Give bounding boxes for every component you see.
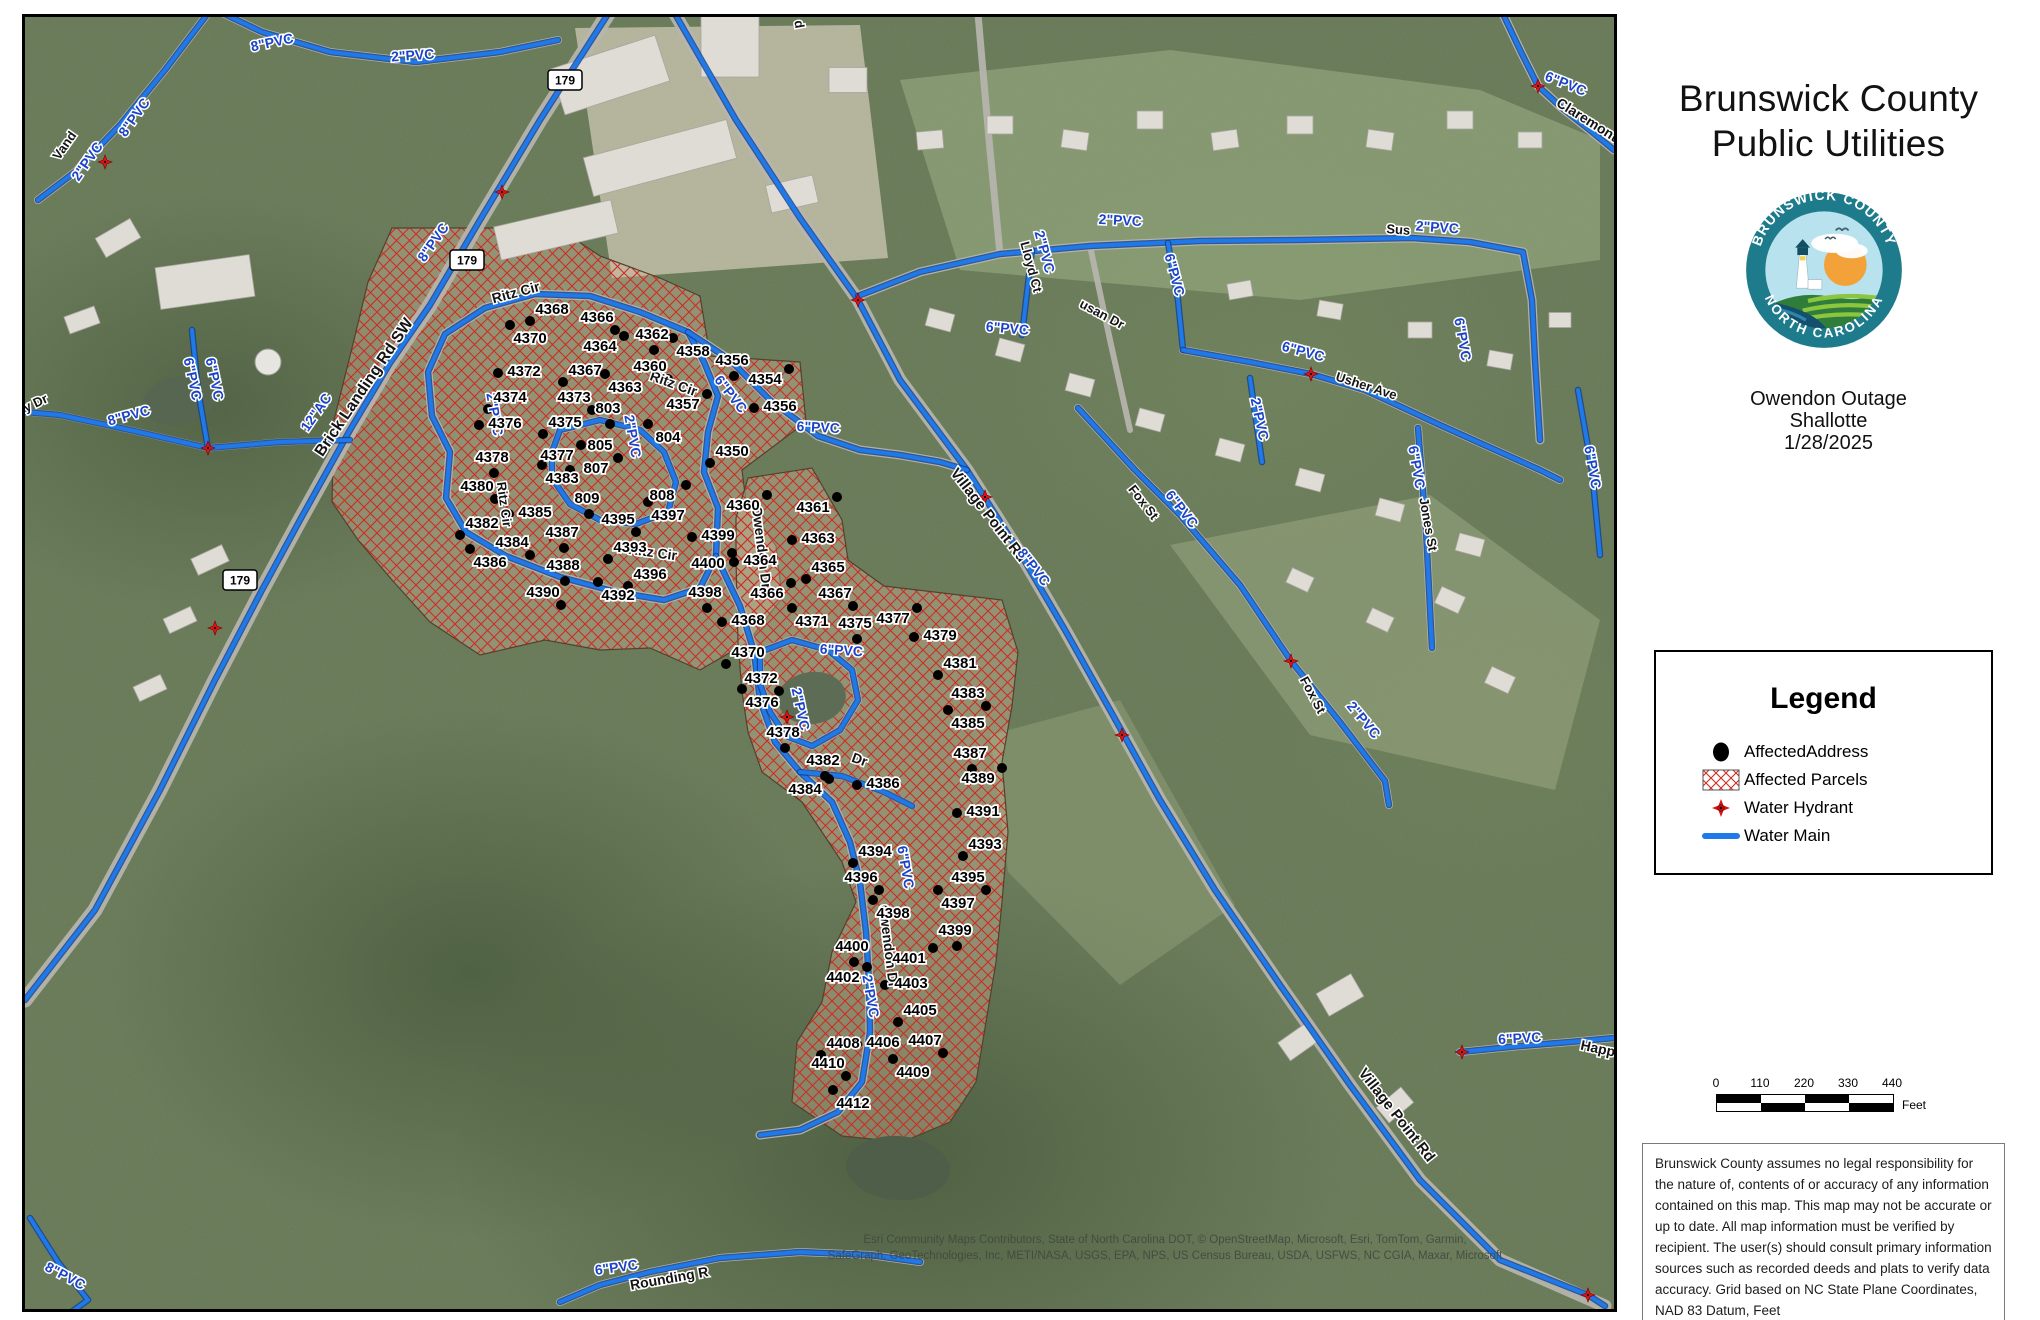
address-label: 4395 [601, 511, 634, 528]
address-label: 4370 [731, 644, 764, 661]
legend: Legend AffectedAddress [1654, 650, 1993, 875]
shield-text: 179 [555, 74, 575, 88]
address-label: 4364 [583, 338, 617, 355]
affected-address-dot [593, 577, 603, 587]
address-label: 4412 [836, 1095, 869, 1112]
address-label: 4356 [715, 352, 748, 369]
affected-address-dot [938, 1048, 948, 1058]
address-label: 4402 [826, 969, 859, 986]
legend-label: Affected Parcels [1744, 770, 1867, 790]
affected-address-dot [893, 1017, 903, 1027]
address-label: 4386 [866, 775, 899, 792]
address-label: 4372 [507, 363, 540, 380]
affected-address-dot [888, 1054, 898, 1064]
address-label: 4403 [894, 975, 927, 992]
water-tank [255, 349, 281, 375]
legend-item-affected-parcels: Affected Parcels [1656, 766, 1991, 794]
address-label: 4399 [938, 922, 971, 939]
affected-address-dot [610, 325, 620, 335]
hydrant-center [1461, 1051, 1463, 1053]
affected-address-dot [958, 851, 968, 861]
address-label: 4409 [896, 1064, 929, 1081]
page: 179179179VandBrick Landing Rd SWry DrCla… [0, 0, 2040, 1320]
scale-bar: 0110220330440 Feet [1716, 1076, 1956, 1112]
address-label: 4410 [811, 1055, 844, 1072]
address-label: 4375 [548, 414, 581, 431]
address-label: 4393 [613, 539, 646, 556]
affected-address-dot [841, 1071, 851, 1081]
route-shield-179: 179 [223, 570, 257, 590]
address-label: 4375 [838, 615, 871, 632]
affected-address-dot [702, 389, 712, 399]
hydrant-center [501, 191, 503, 193]
affected-address-dot [559, 543, 569, 553]
affected-address-dot [489, 468, 499, 478]
water-main-icon [1698, 824, 1744, 848]
affected-address-icon [1698, 740, 1744, 764]
address-label: 4361 [796, 499, 829, 516]
affected-address-dot [649, 345, 659, 355]
map-title: Brunswick County Public Utilities [1617, 76, 2040, 166]
address-label: 4360 [726, 497, 759, 514]
pipe-size-label: 2"PVC [391, 46, 435, 65]
address-label: 4392 [601, 587, 634, 604]
hydrant-center [1310, 373, 1312, 375]
building [1287, 116, 1313, 134]
address-label: 4354 [748, 371, 782, 388]
affected-address-dot [631, 527, 641, 537]
address-label: 4405 [903, 1002, 936, 1019]
outage-info: Owendon Outage Shallotte 1/28/2025 [1617, 388, 2040, 454]
address-label: 4357 [666, 396, 699, 413]
building [916, 130, 943, 150]
street-label: Sus [1386, 221, 1411, 238]
address-label: 4378 [475, 449, 508, 466]
address-label: 4371 [795, 613, 828, 630]
affected-address-dot [455, 530, 465, 540]
address-label: 4398 [876, 905, 909, 922]
address-label: 4385 [518, 504, 551, 521]
affected-address-dot [933, 885, 943, 895]
address-label: 4367 [568, 362, 601, 379]
address-label: 804 [655, 429, 681, 446]
affected-address-dot [874, 885, 884, 895]
building [1549, 313, 1571, 328]
scale-segment [1761, 1095, 1805, 1103]
address-label: 4408 [826, 1035, 859, 1052]
disclaimer-box: Brunswick County assumes no legal respon… [1642, 1143, 2005, 1320]
address-label: 808 [649, 487, 674, 504]
affected-address-dot [705, 458, 715, 468]
affected-address-dot [832, 492, 842, 502]
scale-segment [1849, 1095, 1893, 1103]
outage-town: Shallotte [1617, 410, 2040, 432]
map-svg: 179179179VandBrick Landing Rd SWry DrCla… [25, 17, 1614, 1309]
address-label: 4406 [866, 1034, 899, 1051]
address-label: 4394 [858, 843, 892, 860]
address-label: 4377 [540, 447, 573, 464]
shield-text: 179 [457, 254, 477, 268]
address-label: 4399 [701, 527, 734, 544]
pipe-size-label: 2"PVC [1415, 218, 1459, 237]
affected-address-dot [952, 808, 962, 818]
affected-address-dot [849, 957, 859, 967]
building [1447, 111, 1473, 129]
brunswick-county-logo: BRUNSWICK COUNTY NORTH CAROLINA [1744, 190, 1904, 350]
map-title-line2: Public Utilities [1617, 121, 2040, 166]
outage-name: Owendon Outage [1617, 388, 2040, 410]
shield-text: 179 [230, 574, 250, 588]
building [1366, 129, 1394, 150]
logo-cloud2-icon [1836, 243, 1868, 258]
affected-address-dot [668, 333, 678, 343]
address-label: 4374 [493, 389, 527, 406]
legend-label: Water Main [1744, 826, 1830, 846]
building [1211, 129, 1239, 150]
affected-address-dot [613, 453, 623, 463]
affected-address-dot [560, 576, 570, 586]
hydrant-center [786, 716, 788, 718]
logo-lighthouse-cap [1797, 248, 1808, 255]
hydrant-center [207, 447, 209, 449]
address-label: 4401 [892, 950, 925, 967]
affected-address-dot [780, 743, 790, 753]
affected-address-dot [505, 320, 515, 330]
address-label: 4372 [744, 670, 777, 687]
address-label: 4356 [763, 398, 796, 415]
address-label: 4389 [961, 770, 994, 787]
address-label: 4376 [488, 415, 521, 432]
address-label: 4407 [908, 1032, 941, 1049]
address-label: 4387 [545, 524, 578, 541]
affected-address-dot [828, 1085, 838, 1095]
legend-label: Water Hydrant [1744, 798, 1853, 818]
affected-address-dot [702, 603, 712, 613]
address-label: 803 [595, 400, 620, 417]
affected-address-dot [824, 774, 834, 784]
affected-address-dot [787, 535, 797, 545]
affected-address-dot [762, 490, 772, 500]
address-label: 4385 [951, 715, 984, 732]
address-label: 4368 [535, 301, 568, 318]
address-label: 4383 [951, 685, 984, 702]
legend-item-affected-address: AffectedAddress [1656, 738, 1991, 766]
address-label: 4364 [743, 552, 777, 569]
address-label: 4350 [715, 443, 748, 460]
scale-ticks: 0110220330440 [1716, 1076, 1956, 1092]
scale-segment [1805, 1095, 1849, 1103]
scale-bar-graphic [1716, 1094, 1894, 1112]
address-label: 4382 [465, 515, 498, 532]
affected-address-dot [862, 962, 872, 972]
address-label: 4381 [943, 655, 976, 672]
affected-address-dot [619, 331, 629, 341]
affected-address-dot [868, 895, 878, 905]
address-label: 4376 [745, 694, 778, 711]
affected-address-dot [786, 578, 796, 588]
address-label: 4368 [731, 612, 764, 629]
address-label: 4398 [688, 584, 721, 601]
address-label: 4366 [750, 585, 783, 602]
address-label: 4384 [788, 781, 822, 798]
address-label: 807 [583, 460, 608, 477]
address-label: 4365 [811, 559, 844, 576]
hydrant-center [1121, 734, 1123, 736]
hydrant-center [857, 299, 859, 301]
building [1518, 132, 1542, 148]
scale-segment [1849, 1103, 1893, 1111]
affected-address-dot [525, 316, 535, 326]
legend-label: AffectedAddress [1744, 742, 1868, 762]
affected-address-dot [912, 603, 922, 613]
scale-segment [1717, 1103, 1761, 1111]
affected-address-dot [603, 554, 613, 564]
affected-address-dot [605, 419, 615, 429]
address-label: 4400 [691, 555, 724, 572]
scale-unit: Feet [1902, 1098, 1926, 1112]
address-label: 4396 [844, 869, 877, 886]
address-label: 4384 [495, 534, 529, 551]
scale-tick: 110 [1750, 1076, 1769, 1090]
affected-address-dot [493, 368, 503, 378]
address-label: 4388 [546, 557, 579, 574]
map-attribution: Esri Community Maps Contributors, State … [863, 1234, 1466, 1246]
address-label: 4360 [633, 358, 666, 375]
affected-address-dot [584, 509, 594, 519]
affected-address-dot [848, 601, 858, 611]
address-label: 4363 [608, 379, 641, 396]
affected-address-dot [538, 429, 548, 439]
water-hydrant-icon [1698, 796, 1744, 820]
affected-address-dot [474, 420, 484, 430]
scale-segment [1717, 1095, 1761, 1103]
affected-address-dot [643, 419, 653, 429]
affected-address-dot [465, 544, 475, 554]
hydrant-center [1587, 1294, 1589, 1296]
scale-tick: 440 [1882, 1076, 1902, 1090]
hydrant-center [1290, 660, 1292, 662]
map-attribution: SafeGraph, GeoTechnologies, Inc, METI/NA… [828, 1250, 1503, 1262]
address-label: 4358 [676, 343, 709, 360]
scale-segment [1805, 1103, 1849, 1111]
affected-address-dot [558, 377, 568, 387]
affected-address-dot [997, 763, 1007, 773]
affected-address-dot [729, 557, 739, 567]
logo-lighthouse-light [1800, 256, 1805, 260]
affected-address-dot [525, 550, 535, 560]
building [987, 116, 1013, 134]
affected-address-dot [981, 701, 991, 711]
address-label: 4396 [633, 566, 666, 583]
affected-address-dot [717, 617, 727, 627]
affected-address-dot [721, 659, 731, 669]
hydrant-center [214, 627, 216, 629]
address-label: 4363 [801, 530, 834, 547]
legend-item-water-hydrant: Water Hydrant [1656, 794, 1991, 822]
address-label: 809 [574, 490, 599, 507]
address-label: 4370 [513, 330, 546, 347]
side-panel: Brunswick County Public Utilities [1617, 0, 2040, 1320]
affected-address-dot [928, 943, 938, 953]
address-label: 4393 [968, 836, 1001, 853]
hydrant-center [104, 161, 106, 163]
address-label: 4386 [473, 554, 506, 571]
building [1408, 322, 1432, 338]
pipe-size-label: 2"PVC [1098, 211, 1142, 229]
map-canvas: 179179179VandBrick Landing Rd SWry DrCla… [22, 14, 1617, 1312]
address-label: 4373 [557, 389, 590, 406]
address-label: 4400 [835, 938, 868, 955]
scale-tick: 0 [1713, 1076, 1720, 1090]
affected-address-dot [852, 780, 862, 790]
route-shield-179: 179 [450, 250, 484, 270]
affected-address-dot [933, 670, 943, 680]
outage-date: 1/28/2025 [1617, 432, 2040, 454]
address-label: 4362 [635, 326, 668, 343]
scale-tick: 220 [1794, 1076, 1814, 1090]
address-label: 4383 [545, 470, 578, 487]
address-label: 4366 [580, 309, 613, 326]
pipe-size-label: 6"PVC [819, 641, 863, 660]
address-label: 4367 [818, 585, 851, 602]
address-label: 4380 [460, 478, 493, 495]
address-label: 4378 [766, 724, 799, 741]
address-label: 4387 [953, 745, 986, 762]
address-label: 4390 [526, 584, 559, 601]
address-label: 4377 [876, 610, 909, 627]
address-label: 4391 [966, 803, 999, 820]
address-label: 805 [587, 437, 612, 454]
building [829, 68, 867, 93]
affected-address-dot [787, 603, 797, 613]
affected-address-dot [909, 632, 919, 642]
address-label: 4397 [651, 507, 684, 524]
address-label: 4395 [951, 869, 984, 886]
building [1137, 111, 1163, 129]
address-label: 4397 [941, 895, 974, 912]
building [1061, 129, 1089, 150]
affected-address-dot [943, 705, 953, 715]
pipe-size-label: 6"PVC [796, 418, 840, 436]
affected-address-dot [687, 532, 697, 542]
affected-address-dot [727, 548, 737, 558]
affected-address-dot [981, 885, 991, 895]
address-label: 4382 [806, 752, 839, 769]
affected-parcels-icon [1698, 768, 1744, 792]
address-label: 4379 [923, 627, 956, 644]
affected-address-dot [848, 858, 858, 868]
affected-address-dot [801, 574, 811, 584]
logo-house [1808, 280, 1822, 290]
pipe-size-label: 6"PVC [1498, 1029, 1542, 1047]
affected-address-dot [576, 440, 586, 450]
map-title-line1: Brunswick County [1617, 76, 2040, 121]
hydrant-center [1537, 85, 1539, 87]
affected-address-dot [784, 364, 794, 374]
affected-address-dot [952, 941, 962, 951]
scale-segment [1761, 1103, 1805, 1111]
route-shield-179: 179 [548, 70, 582, 90]
affected-address-dot [681, 480, 691, 490]
legend-item-water-main: Water Main [1656, 822, 1991, 850]
legend-title: Legend [1656, 682, 1991, 716]
scale-tick: 330 [1838, 1076, 1858, 1090]
affected-address-dot [556, 600, 566, 610]
